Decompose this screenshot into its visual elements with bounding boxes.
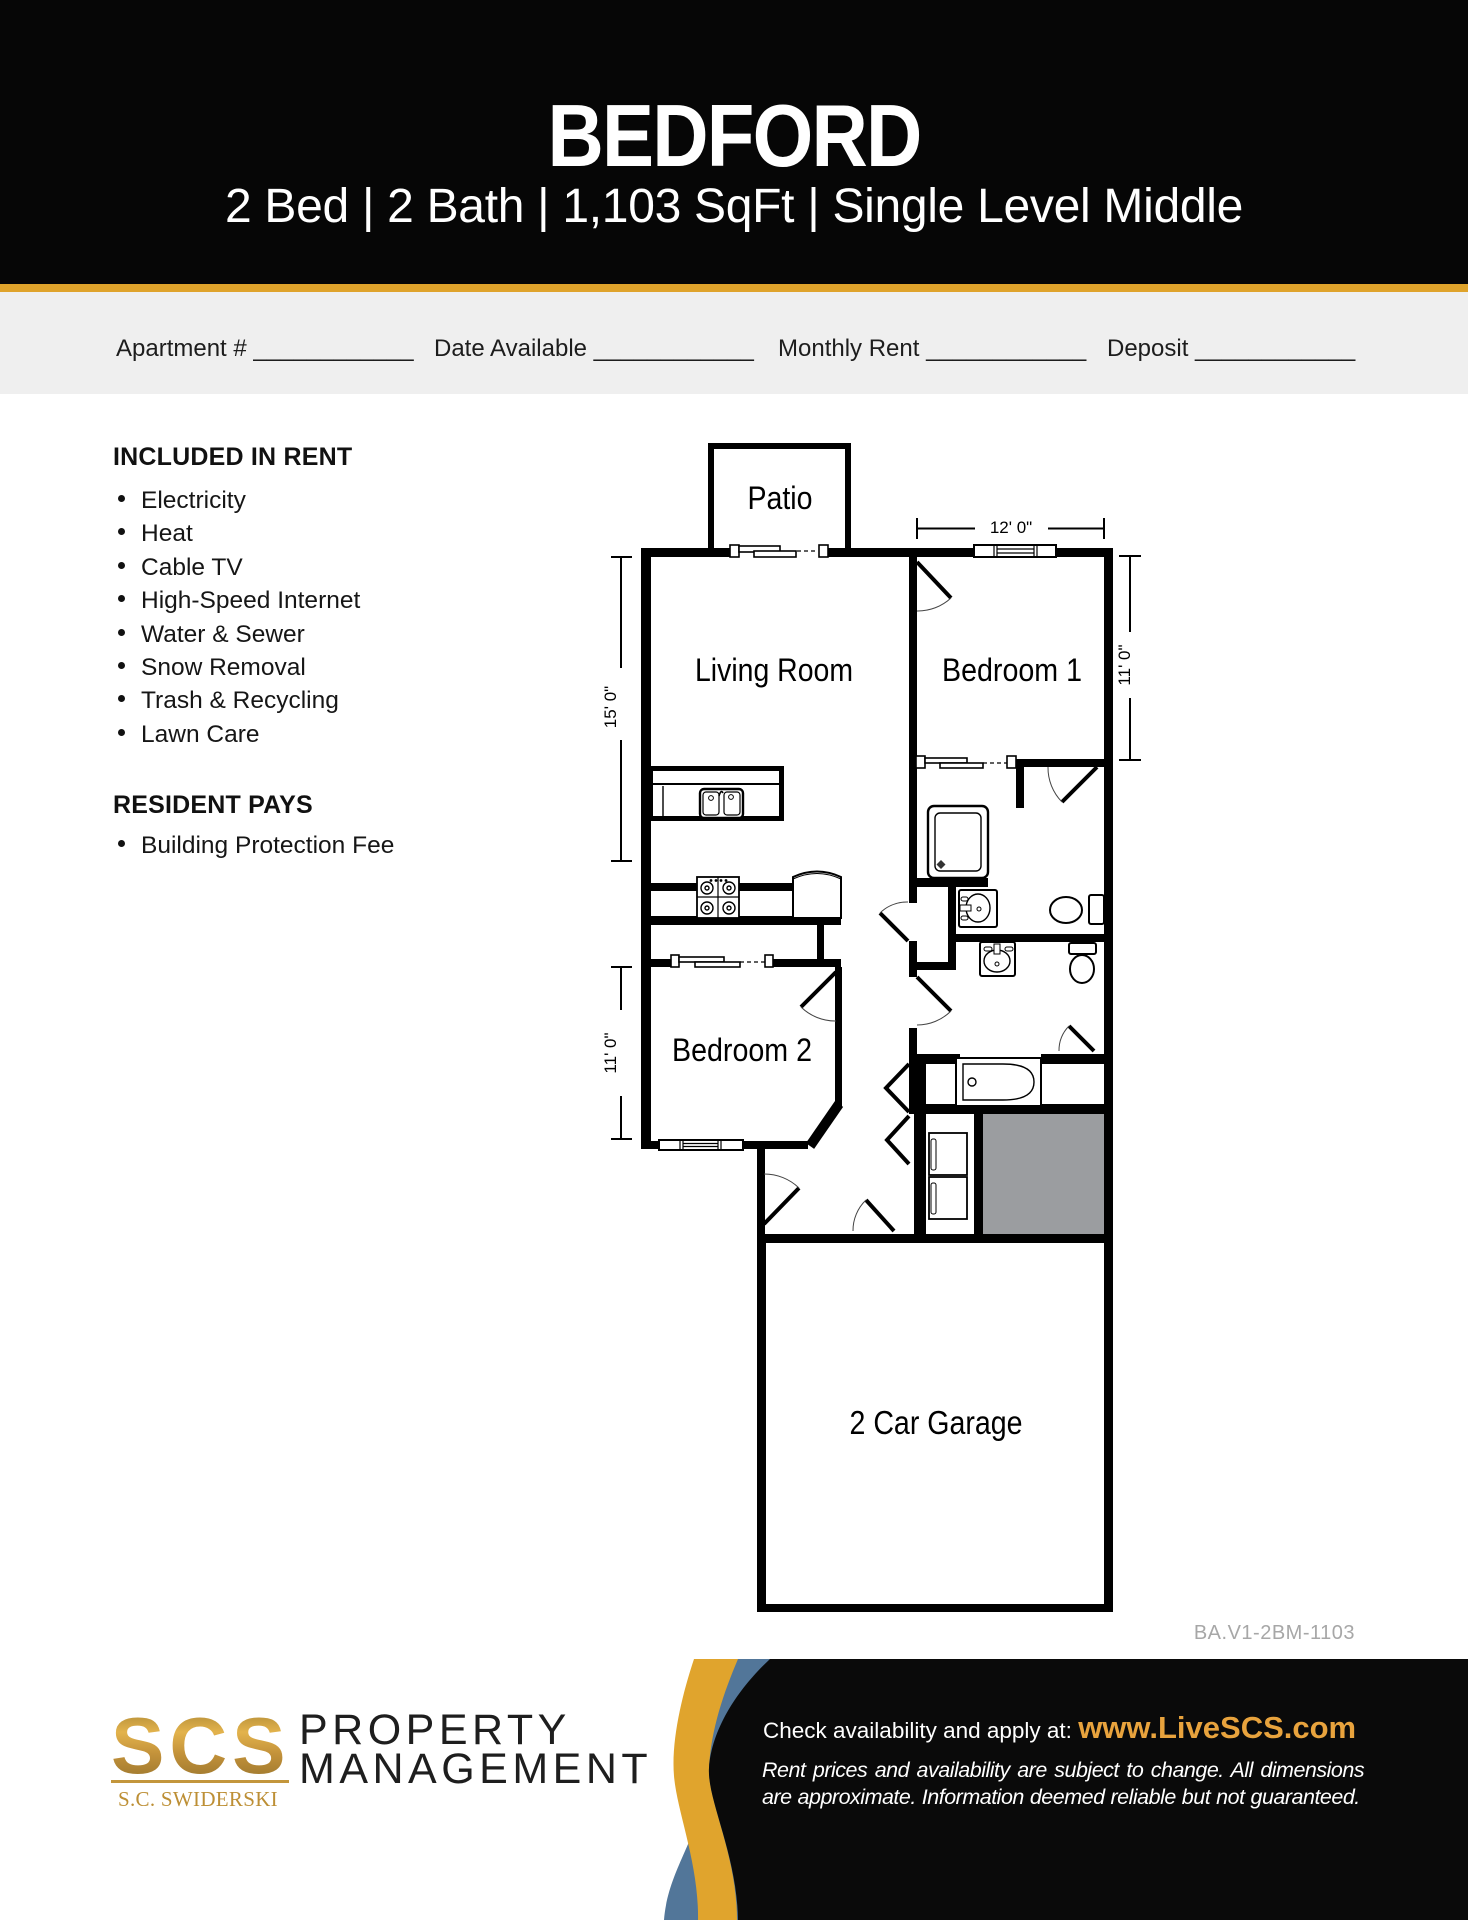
svg-text:11' 0": 11' 0": [601, 1032, 620, 1073]
svg-text:11' 0": 11' 0": [1115, 644, 1134, 685]
svg-text:Living Room: Living Room: [695, 652, 853, 688]
svg-text:Bedroom 1: Bedroom 1: [942, 652, 1082, 688]
svg-text:12' 0": 12' 0": [990, 518, 1032, 537]
svg-text:2 Car Garage: 2 Car Garage: [850, 1404, 1023, 1441]
svg-text:15' 0": 15' 0": [601, 686, 620, 728]
svg-text:Bedroom 2: Bedroom 2: [672, 1032, 812, 1068]
svg-text:SCS: SCS: [111, 1701, 291, 1790]
svg-text:Patio: Patio: [748, 480, 813, 516]
svg-text:S.C. SWIDERSKI: S.C. SWIDERSKI: [118, 1787, 278, 1811]
